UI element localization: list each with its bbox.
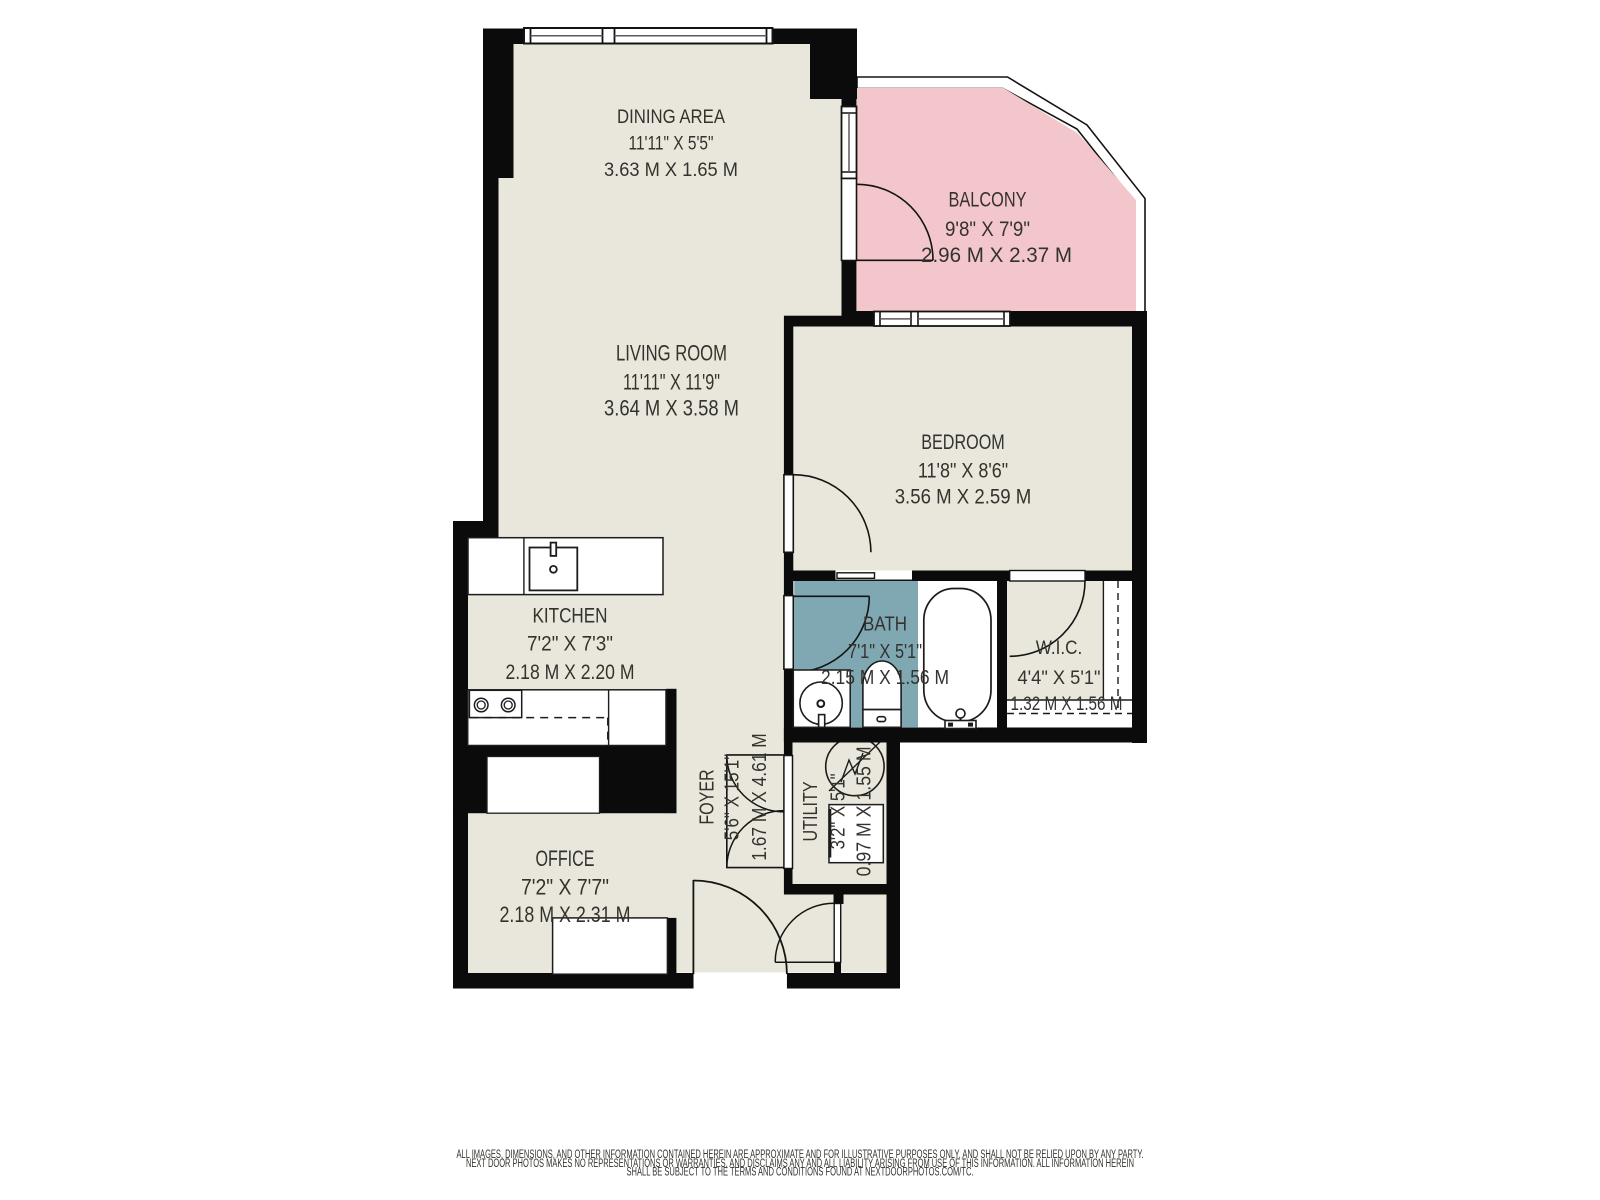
- svg-text:7'1" X 5'1": 7'1" X 5'1": [848, 640, 922, 663]
- svg-text:7'2" X 7'3": 7'2" X 7'3": [527, 631, 613, 655]
- svg-text:W.I.C.: W.I.C.: [1036, 638, 1083, 659]
- svg-text:11'11" X 5'5": 11'11" X 5'5": [629, 134, 714, 155]
- svg-text:2.15 M X 1.56 M: 2.15 M X 1.56 M: [821, 666, 949, 689]
- svg-text:3'2" X 5'1": 3'2" X 5'1": [826, 773, 849, 849]
- svg-text:BATH: BATH: [863, 613, 907, 636]
- svg-text:KITCHEN: KITCHEN: [533, 604, 608, 628]
- svg-text:2.18 M X 2.31 M: 2.18 M X 2.31 M: [500, 902, 631, 927]
- svg-text:FOYER: FOYER: [695, 769, 718, 824]
- svg-text:0.97 M X 1.55 M: 0.97 M X 1.55 M: [853, 746, 876, 876]
- svg-text:SHALL BE SUBJECT TO THE TERMS: SHALL BE SUBJECT TO THE TERMS AND CONDIT…: [627, 1166, 974, 1178]
- svg-text:2.18 M X 2.20 M: 2.18 M X 2.20 M: [506, 660, 635, 684]
- svg-text:4'4" X 5'1": 4'4" X 5'1": [1018, 668, 1101, 689]
- svg-text:1.67 M X 4.61 M: 1.67 M X 4.61 M: [748, 733, 771, 861]
- svg-text:2.96 M X 2.37 M: 2.96 M X 2.37 M: [921, 244, 1072, 267]
- svg-text:DINING AREA: DINING AREA: [617, 107, 725, 128]
- svg-text:OFFICE: OFFICE: [536, 846, 595, 871]
- svg-text:5'6" X 15'1": 5'6" X 15'1": [720, 754, 743, 840]
- svg-text:3.63 M X 1.65 M: 3.63 M X 1.65 M: [604, 160, 738, 181]
- svg-text:UTILITY: UTILITY: [799, 781, 822, 841]
- svg-text:1.32 M X 1.56 M: 1.32 M X 1.56 M: [1011, 694, 1123, 715]
- svg-text:11'11" X 11'9": 11'11" X 11'9": [623, 369, 720, 394]
- svg-text:11'8" X 8'6": 11'8" X 8'6": [918, 458, 1008, 482]
- svg-text:LIVING ROOM: LIVING ROOM: [616, 340, 727, 365]
- svg-text:3.64 M X 3.58 M: 3.64 M X 3.58 M: [604, 395, 739, 420]
- svg-text:7'2" X 7'7": 7'2" X 7'7": [521, 875, 609, 900]
- svg-text:3.56 M X 2.59 M: 3.56 M X 2.59 M: [895, 485, 1032, 509]
- svg-text:BEDROOM: BEDROOM: [921, 430, 1005, 454]
- svg-text:9'8" X 7'9": 9'8" X 7'9": [945, 218, 1030, 241]
- svg-text:BALCONY: BALCONY: [949, 188, 1027, 211]
